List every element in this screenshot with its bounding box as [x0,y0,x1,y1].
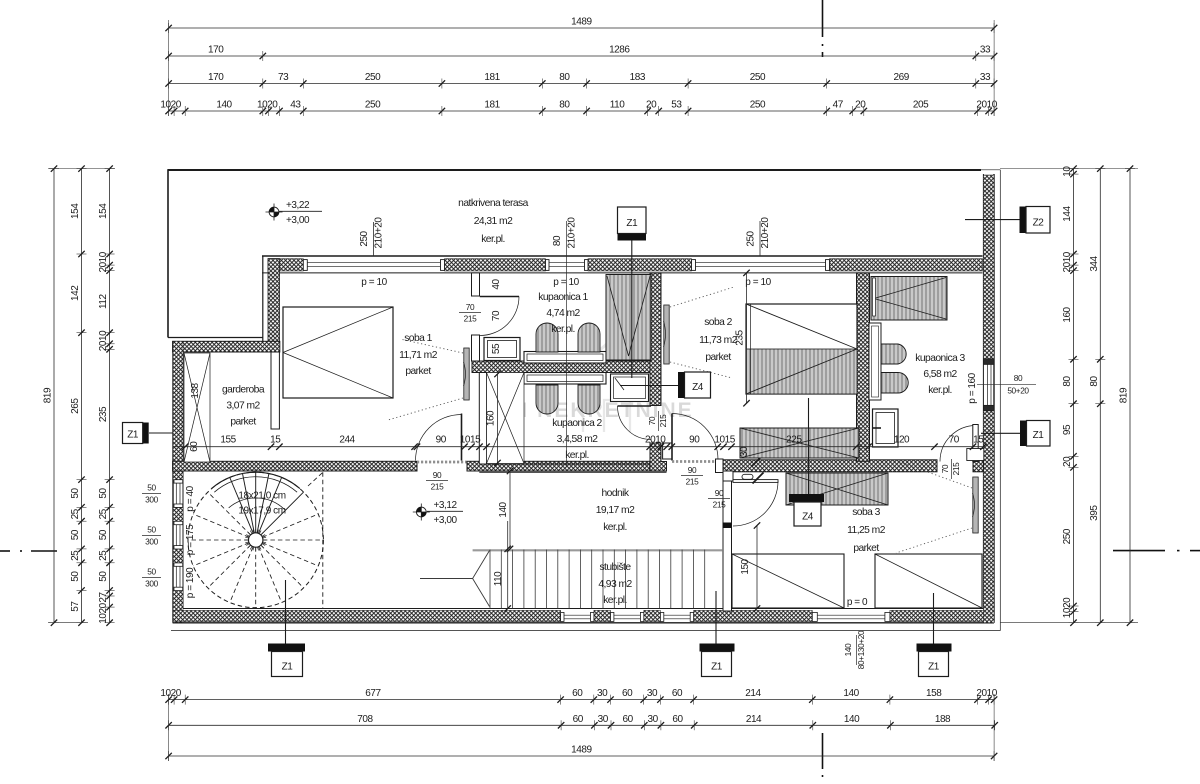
svg-text:80: 80 [559,72,570,83]
svg-text:250: 250 [746,230,757,246]
svg-text:50: 50 [147,483,156,493]
svg-text:819: 819 [43,387,54,403]
svg-text:1020: 1020 [160,688,181,699]
svg-text:300: 300 [145,495,158,505]
svg-text:244: 244 [339,435,355,446]
svg-text:2010: 2010 [976,688,997,699]
svg-text:50: 50 [70,529,81,540]
svg-text:27: 27 [98,592,109,603]
svg-text:1020: 1020 [98,602,109,623]
svg-text:708: 708 [357,714,373,725]
svg-text:Z1: Z1 [711,662,723,673]
svg-text:73: 73 [278,72,289,83]
svg-text:188: 188 [935,714,951,725]
svg-text:80: 80 [1089,376,1100,387]
svg-text:1020: 1020 [160,100,181,111]
svg-text:parket: parket [853,543,879,554]
svg-text:210+20: 210+20 [760,217,771,249]
svg-text:2010: 2010 [976,100,997,111]
svg-text:250: 250 [750,100,766,111]
svg-text:60: 60 [622,714,633,725]
svg-text:ker.pl.: ker.pl. [481,234,505,245]
svg-text:19x17,9 cm: 19x17,9 cm [238,506,285,517]
svg-text:235: 235 [735,329,746,345]
svg-text:80+130+20: 80+130+20 [856,630,866,669]
svg-text:25: 25 [98,550,109,561]
svg-text:142: 142 [70,285,81,301]
svg-text:269: 269 [894,72,910,83]
svg-text:50: 50 [147,567,156,577]
svg-text:4,74 m2: 4,74 m2 [546,308,580,319]
svg-text:30: 30 [647,688,658,699]
svg-text:215: 215 [658,414,668,427]
svg-text:112: 112 [98,294,109,309]
svg-text:70: 70 [940,464,950,473]
svg-text:hodnik: hodnik [601,488,629,499]
svg-text:p = 190: p = 190 [185,567,196,598]
svg-text:154: 154 [98,203,109,219]
svg-text:60: 60 [572,688,583,699]
svg-text:+3,12: +3,12 [434,500,458,511]
svg-text:Z4: Z4 [802,512,814,523]
svg-text:181: 181 [484,100,500,111]
svg-text:80: 80 [1062,376,1073,387]
svg-text:300: 300 [145,537,158,547]
svg-text:2010: 2010 [645,435,666,446]
svg-text:natkrivena terasa: natkrivena terasa [458,198,528,209]
svg-text:25: 25 [70,550,81,561]
svg-text:70: 70 [466,302,475,312]
svg-text:140: 140 [844,714,860,725]
svg-text:1020: 1020 [1062,597,1073,618]
svg-text:parket: parket [230,417,256,428]
svg-text:3,4,58 m2: 3,4,58 m2 [557,434,599,445]
svg-text:19,17 m2: 19,17 m2 [596,505,635,516]
svg-text:kupaonica 2: kupaonica 2 [552,418,602,429]
svg-text:30: 30 [647,714,658,725]
svg-text:parket: parket [405,366,431,377]
svg-text:205: 205 [913,100,929,111]
svg-text:60: 60 [672,688,683,699]
svg-text:p = 10: p = 10 [745,277,771,288]
svg-text:soba 3: soba 3 [852,507,880,518]
svg-text:p = 175: p = 175 [185,524,196,555]
svg-text:soba 2: soba 2 [704,317,732,328]
svg-text:11,71 m2: 11,71 m2 [399,350,438,361]
svg-text:250: 250 [365,100,381,111]
svg-text:24,31 m2: 24,31 m2 [474,216,513,227]
svg-text:138: 138 [190,382,201,398]
svg-text:+3,00: +3,00 [286,215,310,226]
svg-text:144: 144 [1062,206,1073,222]
svg-text:50+20: 50+20 [1007,386,1029,396]
svg-text:Z1: Z1 [282,662,294,673]
svg-text:395: 395 [1089,505,1100,521]
svg-text:60: 60 [189,441,200,452]
svg-text:ker.pl.: ker.pl. [551,324,575,335]
svg-text:2010: 2010 [98,251,109,272]
svg-text:215: 215 [464,314,477,324]
svg-text:140: 140 [498,501,509,517]
svg-text:215: 215 [686,477,699,487]
svg-text:50: 50 [70,571,81,582]
svg-text:50: 50 [70,488,81,499]
svg-text:90: 90 [689,435,700,446]
svg-text:95: 95 [1062,424,1073,435]
svg-text:2010: 2010 [98,330,109,351]
svg-text:kupaonica 1: kupaonica 1 [538,292,588,303]
svg-text:181: 181 [484,72,500,83]
svg-text:50: 50 [98,571,109,582]
svg-text:p = 10: p = 10 [361,277,387,288]
svg-text:30: 30 [598,714,609,725]
svg-text:ker.pl.: ker.pl. [603,595,627,606]
svg-text:110: 110 [493,571,504,586]
svg-text:300: 300 [145,579,158,589]
svg-text:120: 120 [894,435,910,446]
svg-text:55: 55 [491,343,502,354]
svg-text:15: 15 [973,435,984,446]
svg-text:parket: parket [705,352,731,363]
svg-text:47: 47 [833,100,844,111]
svg-text:250: 250 [365,72,381,83]
svg-text:11,73 m2: 11,73 m2 [699,335,738,346]
svg-text:210+20: 210+20 [567,217,578,249]
svg-text:1286: 1286 [609,45,630,56]
svg-text:3,07 m2: 3,07 m2 [226,401,260,412]
svg-text:Z1: Z1 [1033,430,1045,441]
svg-text:Z1: Z1 [626,218,638,229]
svg-text:140: 140 [843,643,853,656]
svg-text:1015: 1015 [460,435,481,446]
svg-text:25: 25 [98,508,109,519]
svg-text:25: 25 [70,508,81,519]
svg-text:33: 33 [980,72,991,83]
svg-text:p = 40: p = 40 [185,485,196,511]
svg-text:60: 60 [672,714,683,725]
svg-text:Z1: Z1 [928,662,940,673]
svg-text:110: 110 [610,100,625,111]
svg-text:215: 215 [431,482,444,492]
svg-text:1489: 1489 [571,745,592,756]
svg-text:+3,00: +3,00 [434,515,458,526]
svg-text:+3,22: +3,22 [286,200,310,211]
svg-text:2010: 2010 [1062,251,1073,272]
svg-text:265: 265 [70,398,81,414]
svg-text:170: 170 [208,72,224,83]
svg-text:30: 30 [597,688,608,699]
svg-text:ker.pl.: ker.pl. [928,385,952,396]
svg-text:1020: 1020 [257,100,278,111]
svg-text:Z4: Z4 [692,382,704,393]
svg-text:p = 0: p = 0 [847,597,868,608]
svg-text:250: 250 [750,72,766,83]
svg-text:1015: 1015 [714,435,735,446]
svg-text:210+20: 210+20 [374,217,385,249]
svg-text:50: 50 [98,529,109,540]
svg-text:155: 155 [220,435,236,446]
svg-text:11,25 m2: 11,25 m2 [847,525,886,536]
svg-text:6,58 m2: 6,58 m2 [923,369,957,380]
svg-text:250: 250 [1062,528,1073,544]
svg-text:18x21,0 cm: 18x21,0 cm [238,491,285,502]
svg-text:250: 250 [359,230,370,246]
svg-text:1489: 1489 [571,17,592,28]
svg-text:20: 20 [646,100,657,111]
svg-text:90: 90 [688,465,697,475]
svg-text:garderoba: garderoba [222,385,265,396]
svg-text:53: 53 [671,100,682,111]
svg-text:ker.pl.: ker.pl. [603,522,627,533]
svg-text:70: 70 [491,310,502,321]
svg-text:819: 819 [1119,387,1130,403]
svg-text:80: 80 [559,100,570,111]
svg-text:10: 10 [1062,166,1073,177]
svg-text:20: 20 [855,100,866,111]
svg-text:90: 90 [715,488,724,498]
svg-text:140: 140 [216,100,232,111]
svg-text:15: 15 [270,435,281,446]
svg-text:kupaonica 3: kupaonica 3 [915,353,965,364]
svg-text:60: 60 [622,688,633,699]
svg-text:150: 150 [740,558,751,574]
svg-text:160: 160 [1062,306,1073,322]
svg-text:225: 225 [786,435,802,446]
svg-text:154: 154 [70,203,81,219]
svg-text:214: 214 [746,714,762,725]
svg-text:30: 30 [739,446,750,457]
svg-text:Z1: Z1 [127,430,139,441]
svg-text:50: 50 [98,488,109,499]
svg-text:80: 80 [552,235,563,246]
svg-text:344: 344 [1089,255,1100,271]
svg-text:43: 43 [290,100,301,111]
svg-text:33: 33 [980,45,991,56]
svg-text:170: 170 [208,45,224,56]
svg-text:160: 160 [486,410,497,426]
svg-text:235: 235 [98,406,109,422]
svg-text:soba 1: soba 1 [404,333,432,344]
svg-text:40: 40 [491,279,502,290]
svg-text:50: 50 [147,525,156,535]
svg-text:stubište: stubište [599,562,631,573]
svg-text:70: 70 [949,435,960,446]
svg-text:215: 215 [951,462,961,475]
svg-text:214: 214 [745,688,761,699]
svg-text:90: 90 [436,435,447,446]
svg-text:677: 677 [365,688,381,699]
svg-text:60: 60 [573,714,584,725]
svg-text:90: 90 [433,470,442,480]
svg-text:20: 20 [1062,456,1073,467]
svg-text:70: 70 [647,416,657,425]
svg-text:Z2: Z2 [1033,218,1045,229]
svg-text:ker.pl.: ker.pl. [565,450,589,461]
svg-text:140: 140 [843,688,859,699]
svg-text:183: 183 [630,72,646,83]
svg-text:215: 215 [713,500,726,510]
svg-text:158: 158 [926,688,942,699]
svg-text:57: 57 [70,601,81,612]
svg-text:80: 80 [1014,373,1023,383]
svg-text:p = 160: p = 160 [967,372,978,403]
svg-text:4,93 m2: 4,93 m2 [598,579,632,590]
